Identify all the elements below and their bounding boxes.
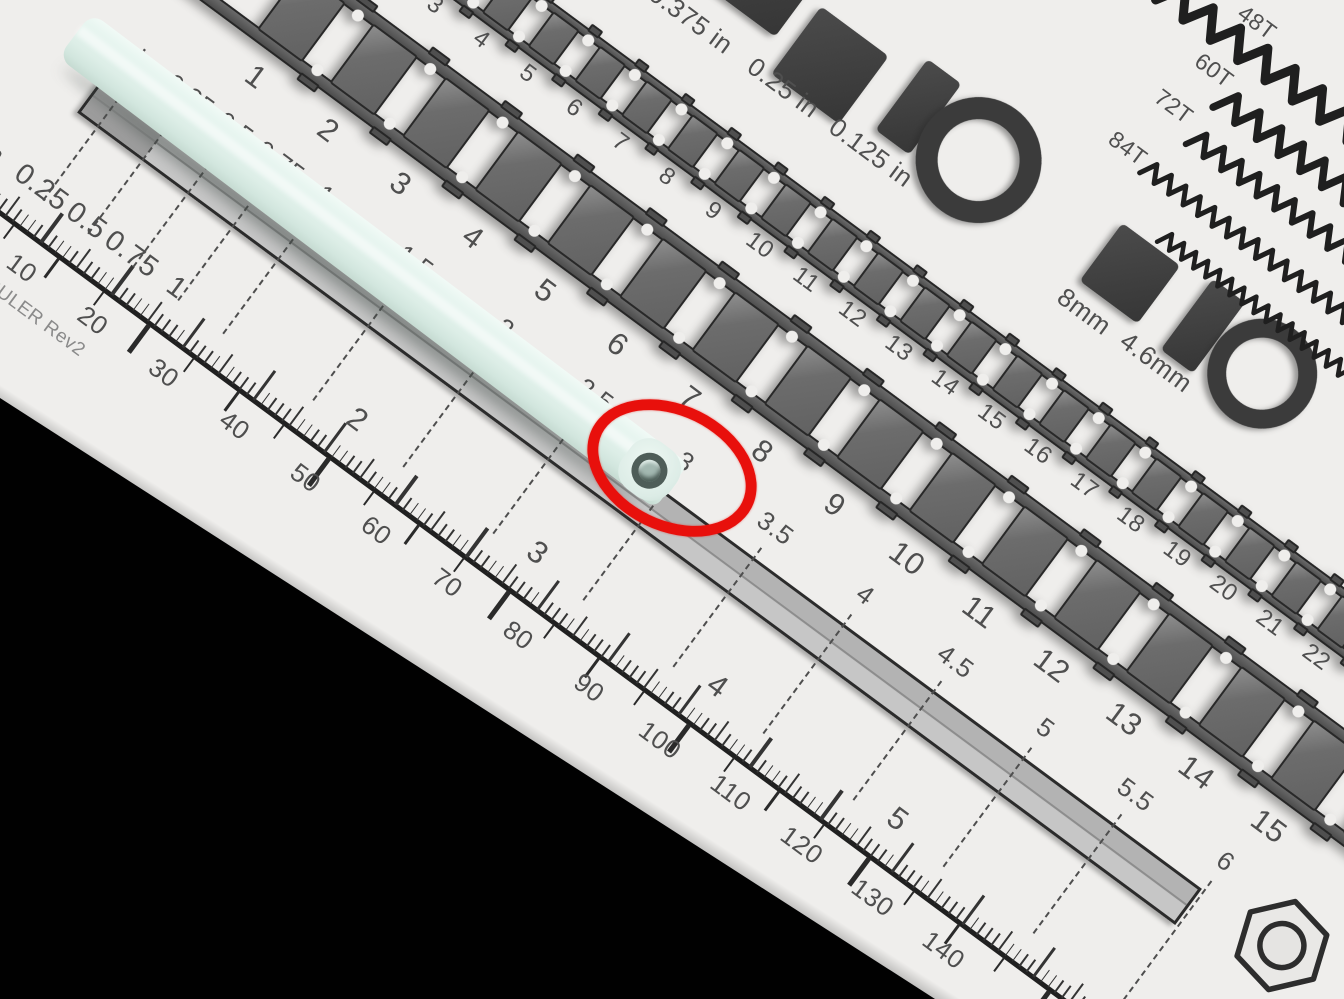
mm-tick xyxy=(976,922,986,935)
mm-tick xyxy=(331,445,341,458)
mm-tick xyxy=(437,524,447,537)
small-chain-number: 5 xyxy=(514,59,542,90)
mm-tick xyxy=(898,865,908,878)
mm-tick xyxy=(281,408,291,421)
mm-tick xyxy=(827,812,837,825)
mm-tick xyxy=(83,261,93,274)
mm-tick xyxy=(586,634,596,647)
small-chain-number: 9 xyxy=(699,196,727,227)
inch-tick xyxy=(183,358,195,373)
mm-tick xyxy=(522,587,532,600)
mm-tick xyxy=(884,854,894,867)
ruler-mm-number: 30 xyxy=(142,352,184,395)
ruler-mm-number: 80 xyxy=(497,614,539,657)
mm-tick xyxy=(763,765,773,778)
mm-tick xyxy=(54,240,64,253)
mm-tick xyxy=(451,534,461,547)
mm-tick xyxy=(47,235,57,248)
mm-tick xyxy=(40,213,64,244)
mm-tick xyxy=(813,802,823,815)
inch-tick xyxy=(43,257,60,278)
mm-tick xyxy=(890,842,914,873)
mm-tick xyxy=(934,891,944,904)
mm-tick xyxy=(778,776,788,789)
inch-tick xyxy=(127,324,151,354)
mm-tick xyxy=(834,818,844,831)
small-chain-track-part xyxy=(1339,656,1344,671)
mm-tick xyxy=(558,613,568,626)
mm-tick xyxy=(274,403,284,416)
mm-tick xyxy=(969,917,979,930)
inch-tick xyxy=(903,891,915,906)
mm-tick xyxy=(990,933,1000,946)
mm-tick xyxy=(819,790,843,821)
mm-tick xyxy=(529,592,539,605)
inch-tick xyxy=(543,624,555,639)
mm-tick xyxy=(742,749,752,762)
tooth-count-label: 72T xyxy=(1149,84,1198,130)
mm-tick xyxy=(615,655,625,668)
mm-tick xyxy=(1032,947,1056,978)
mm-tick xyxy=(394,475,418,506)
mm-tick xyxy=(671,697,681,710)
mm-tick xyxy=(1047,975,1057,988)
band-inch-label: 4 xyxy=(850,578,880,612)
mm-tick xyxy=(62,246,72,259)
mm-tick xyxy=(693,713,703,726)
mm-tick xyxy=(161,319,171,332)
mm-tick xyxy=(402,497,412,510)
mm-tick xyxy=(650,681,660,694)
big-chain-number: 2 xyxy=(310,111,346,150)
mm-tick xyxy=(423,513,433,526)
mm-tick xyxy=(707,723,717,736)
mm-tick xyxy=(33,225,43,238)
mm-tick xyxy=(1005,943,1015,956)
mm-tick xyxy=(12,209,22,222)
ruler-inch-label: 5 xyxy=(880,799,916,838)
mm-tick xyxy=(1054,980,1064,993)
mm-tick xyxy=(607,632,631,663)
big-chain-number: 9 xyxy=(817,485,853,524)
band-inch-label: 5 xyxy=(1030,711,1060,745)
mm-tick xyxy=(175,330,185,343)
mm-tick xyxy=(132,298,142,311)
mm-tick xyxy=(841,823,851,836)
mm-tick xyxy=(749,737,773,768)
mm-tick xyxy=(515,581,525,594)
inch-tick xyxy=(764,790,781,811)
band-inch-label: 3.5 xyxy=(751,505,800,552)
mm-tick xyxy=(565,618,575,631)
mm-tick xyxy=(629,665,639,678)
inch-tick xyxy=(1027,990,1051,999)
mm-tick xyxy=(118,288,128,301)
ruler-inch-label: 4 xyxy=(700,666,736,705)
band-inch-label: 6 xyxy=(1210,845,1240,879)
ruler-unit-label: in xyxy=(0,133,11,171)
mm-tick xyxy=(494,566,504,579)
mm-tick xyxy=(310,429,320,442)
ruler-mm-number: 70 xyxy=(426,562,468,605)
mm-tick xyxy=(544,602,554,615)
mm-tick xyxy=(912,875,922,888)
mm-tick xyxy=(97,272,107,285)
ruler-mm-number: 40 xyxy=(213,404,255,447)
small-chain-number: 8 xyxy=(653,162,681,193)
mm-tick xyxy=(1026,959,1036,972)
mm-tick xyxy=(1012,949,1022,962)
ruler-mm-number: 100 xyxy=(633,715,688,767)
mm-tick xyxy=(700,718,710,731)
mm-tick xyxy=(536,580,560,611)
mm-tick xyxy=(0,198,8,211)
mm-tick xyxy=(140,303,150,316)
inch-tick xyxy=(487,590,511,620)
hex-nut-icon xyxy=(1205,869,1344,999)
mm-tick xyxy=(941,896,951,909)
mm-tick xyxy=(877,849,887,862)
mm-tick xyxy=(225,366,235,379)
mm-tick xyxy=(90,267,100,280)
ruler-mm-number: 110 xyxy=(704,768,757,818)
mm-tick xyxy=(388,487,398,500)
mm-tick xyxy=(473,550,483,563)
ruler-mm-number: 50 xyxy=(284,457,326,500)
mm-tick xyxy=(345,456,355,469)
mm-tick xyxy=(685,707,695,720)
mm-tick xyxy=(636,671,646,684)
mm-tick xyxy=(735,744,745,757)
mm-tick xyxy=(678,685,702,716)
mm-tick xyxy=(771,770,781,783)
mm-tick xyxy=(303,424,313,437)
small-chain-number: 3 xyxy=(421,0,449,21)
small-chain-number: 6 xyxy=(560,93,588,124)
inch-tick xyxy=(363,491,375,506)
mm-tick xyxy=(728,739,738,752)
mm-tick xyxy=(181,317,205,348)
mm-tick xyxy=(579,629,589,642)
ruler-mm-number: 60 xyxy=(355,509,397,552)
mm-tick xyxy=(260,393,270,406)
mm-tick xyxy=(352,461,362,474)
mm-tick xyxy=(1061,985,1071,998)
mm-tick xyxy=(267,398,277,411)
mm-tick xyxy=(664,692,674,705)
band-inch-label: 5.5 xyxy=(1111,771,1160,818)
mm-tick xyxy=(252,370,276,401)
mm-tick xyxy=(465,527,489,558)
shape-size-label: 0.375 in xyxy=(643,0,739,61)
mm-tick xyxy=(154,314,164,327)
mm-tick xyxy=(189,340,199,353)
ruler-mm-number: 90 xyxy=(568,667,610,710)
mm-tick xyxy=(203,351,213,364)
mm-tick xyxy=(246,382,256,395)
mm-tick xyxy=(444,529,454,542)
mm-tick xyxy=(295,419,305,432)
inch-tick xyxy=(404,524,421,545)
big-chain-number: 6 xyxy=(600,325,636,364)
mm-tick xyxy=(1019,954,1029,967)
mm-tick xyxy=(416,508,426,521)
inch-tick xyxy=(273,424,285,439)
mm-tick xyxy=(26,219,36,232)
mm-tick xyxy=(239,377,249,390)
mm-tick xyxy=(863,839,873,852)
mm-tick xyxy=(19,214,29,227)
mm-tick xyxy=(373,477,383,490)
small-chain-number: 7 xyxy=(607,127,635,158)
ruler-inch-label: 0.75 xyxy=(98,224,165,285)
mm-tick xyxy=(551,608,561,621)
mm-tick xyxy=(870,844,880,857)
mm-tick xyxy=(806,797,816,810)
inch-tick xyxy=(633,691,645,706)
mm-tick xyxy=(338,450,348,463)
mm-tick xyxy=(381,482,391,495)
mm-tick xyxy=(487,560,497,573)
mm-tick xyxy=(366,471,376,484)
mm-tick xyxy=(849,828,859,841)
mm-tick xyxy=(210,356,220,369)
big-chain-number: 1 xyxy=(238,57,274,96)
mm-tick xyxy=(480,555,490,568)
mm-tick xyxy=(721,734,731,747)
photo-scene: in RULER Rev2 0.250.50.75123451020304050… xyxy=(0,0,1344,999)
mm-tick xyxy=(1040,970,1050,983)
mm-tick xyxy=(961,895,985,926)
mm-tick xyxy=(125,293,135,306)
mm-tick xyxy=(232,372,242,385)
mm-tick xyxy=(459,539,469,552)
mm-tick xyxy=(593,639,603,652)
big-chain-number: 5 xyxy=(527,271,563,310)
mm-tick xyxy=(196,345,206,358)
mm-tick xyxy=(622,660,632,673)
mm-tick xyxy=(409,503,419,516)
inch-tick xyxy=(3,224,15,239)
big-chain-number: 3 xyxy=(383,164,419,203)
mm-tick xyxy=(792,786,802,799)
mm-tick xyxy=(657,686,667,699)
mm-tick xyxy=(955,907,965,920)
inch-tick xyxy=(993,957,1005,972)
mm-tick xyxy=(104,277,114,290)
mm-tick xyxy=(168,324,178,337)
ruler-inch-label: 0.25 xyxy=(8,157,75,218)
band-inch-label: 4.5 xyxy=(931,638,980,685)
mm-tick xyxy=(600,644,610,657)
ruler-mm-number: 140 xyxy=(916,924,971,976)
mm-tick xyxy=(799,791,809,804)
mm-tick xyxy=(317,435,327,448)
mm-tick xyxy=(905,870,915,883)
small-chain-number: 4 xyxy=(467,24,495,55)
big-chain-number: 4 xyxy=(455,218,491,257)
mm-tick xyxy=(983,928,993,941)
mm-tick xyxy=(508,576,518,589)
ruler-inch-label: 3 xyxy=(520,533,556,572)
mm-tick xyxy=(948,901,958,914)
mm-tick xyxy=(756,760,766,773)
ruler-inch-label: 2 xyxy=(340,400,376,439)
mm-tick xyxy=(919,880,929,893)
mm-tick xyxy=(69,251,79,264)
